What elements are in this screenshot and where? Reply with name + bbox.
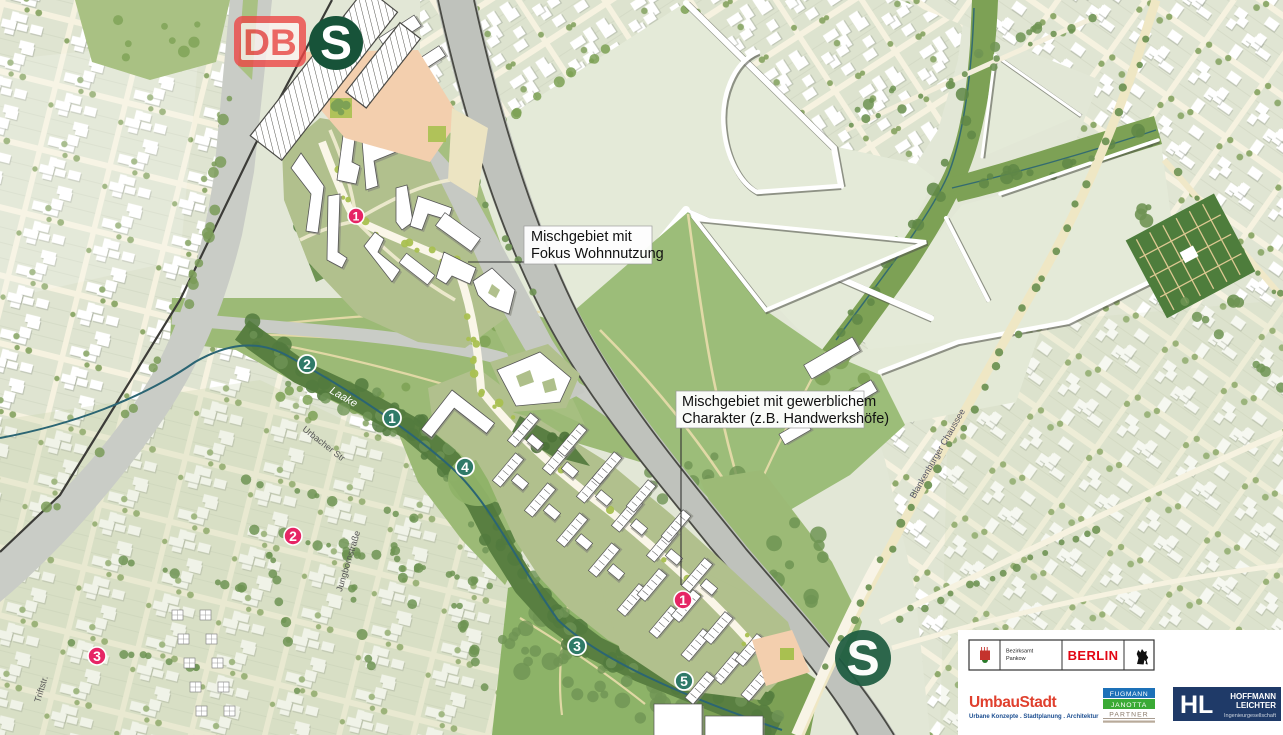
svg-text:HL: HL <box>1180 691 1213 719</box>
svg-text:FUGMANN: FUGMANN <box>1110 691 1149 698</box>
svg-text:Bezirksamt: Bezirksamt <box>1006 649 1034 655</box>
svg-text:LEICHTER: LEICHTER <box>1236 701 1276 710</box>
svg-text:HOFFMANN: HOFFMANN <box>1230 692 1276 701</box>
svg-text:UmbauStadt: UmbauStadt <box>969 694 1057 711</box>
svg-text:3: 3 <box>93 648 101 664</box>
svg-text:1: 1 <box>388 410 396 426</box>
svg-text:2: 2 <box>303 356 311 372</box>
svg-text:Urbane Konzepte . Stadtplanung: Urbane Konzepte . Stadtplanung . Archite… <box>969 714 1099 720</box>
svg-text:1: 1 <box>679 592 687 608</box>
svg-text:Pankow: Pankow <box>1006 656 1026 662</box>
svg-text:Mischgebiet mit: Mischgebiet mit <box>531 229 632 245</box>
svg-text:S: S <box>320 17 352 70</box>
svg-text:Fokus Wohnnutzung: Fokus Wohnnutzung <box>531 246 664 262</box>
svg-text:3: 3 <box>573 638 581 654</box>
svg-text:BERLIN: BERLIN <box>1068 648 1119 663</box>
svg-text:S: S <box>846 630 879 686</box>
svg-text:4: 4 <box>461 459 469 475</box>
svg-text:2: 2 <box>289 528 297 544</box>
svg-text:5: 5 <box>680 673 688 689</box>
svg-text:1: 1 <box>353 209 360 223</box>
svg-text:Charakter (z.B. Handwerkshöfe): Charakter (z.B. Handwerkshöfe) <box>682 411 889 427</box>
svg-text:JANOTTA: JANOTTA <box>1111 702 1147 709</box>
svg-text:DB: DB <box>243 22 296 63</box>
svg-text:Mischgebiet mit gewerblichem: Mischgebiet mit gewerblichem <box>682 394 876 410</box>
svg-text:PARTNER: PARTNER <box>1109 712 1149 719</box>
svg-text:Ingenieurgesellschaft: Ingenieurgesellschaft <box>1224 713 1276 719</box>
